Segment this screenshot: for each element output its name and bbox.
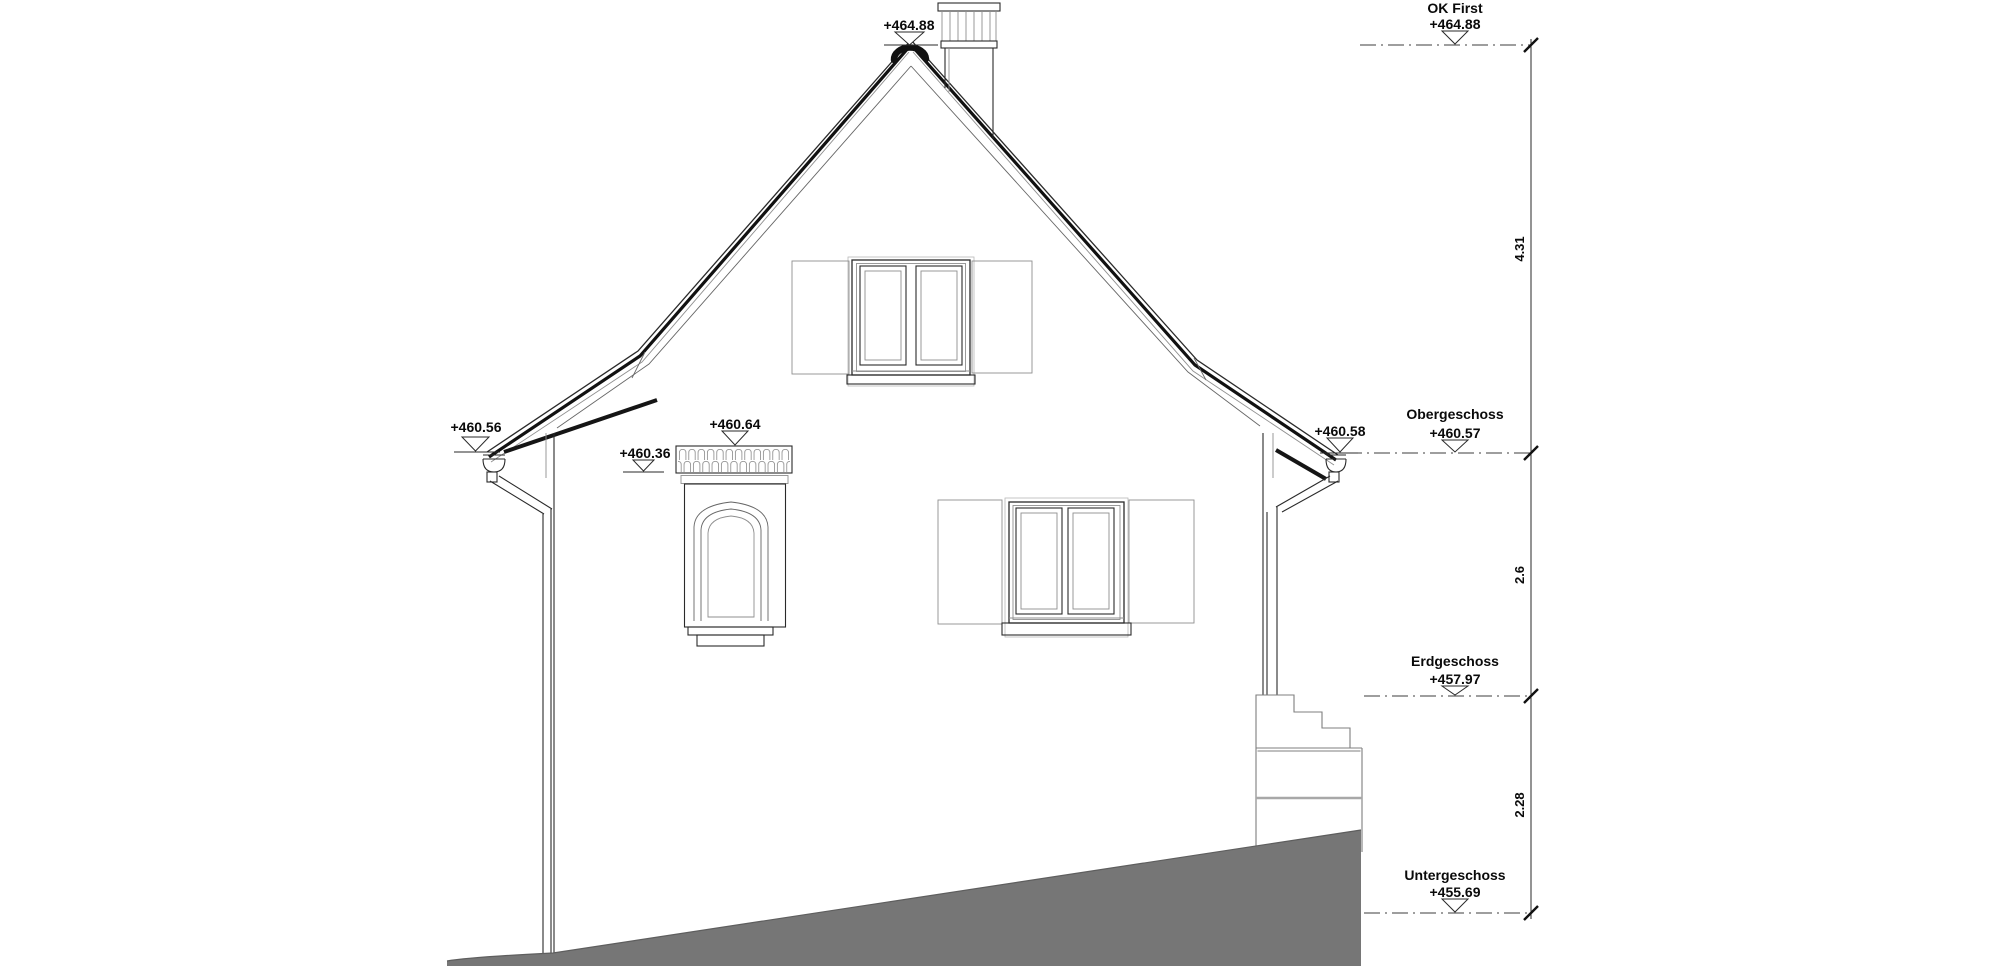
downpipe-elbow-left [487,472,497,482]
level-marker-icon [1442,440,1468,452]
casement-right-glass [1073,513,1109,609]
level-marker-icon [1442,31,1468,44]
bay-body [685,484,786,627]
bay-architrave [681,476,788,484]
bay-window [676,446,792,646]
level-label-untergeschoss: Untergeschoss +455.69 [1404,867,1505,912]
bay-arch-glass [708,516,754,617]
spot-eave-right: +460.58 [1315,423,1366,453]
exterior-stairs [1256,695,1362,852]
window-reveal [1005,498,1128,637]
spot-marker-icon [895,32,924,45]
level-elevation: +464.88 [1430,16,1481,32]
roof-edge-right [911,40,1338,455]
level-marker-icon [1442,899,1468,912]
dimension-chain: 4.31 2.6 2.28 [1512,38,1538,920]
level-name: Erdgeschoss [1411,653,1499,669]
spot-value: +460.56 [451,419,502,435]
stair-steps [1256,695,1350,748]
downpipe-left [543,509,551,953]
spot-bay-cornice-bottom: +460.36 [620,445,671,472]
lower-window [938,498,1194,637]
window-frame [1009,502,1124,623]
window-sill [1002,623,1131,635]
spot-value: +460.58 [1315,423,1366,439]
spot-bay-cornice-top: +460.64 [710,416,761,445]
roof-edge-left [487,40,911,452]
bay-cornice-ornament-row2 [678,460,790,472]
shutter-left [938,500,1002,624]
dimension-value-middle: 2.6 [1512,566,1527,584]
level-elevation: +457.97 [1430,671,1481,687]
roof-batten-right [913,52,1334,465]
dimension-value-top: 4.31 [1512,236,1527,261]
stair-block-top [1256,748,1362,751]
level-label-ok-first: OK First +464.88 [1427,0,1483,44]
shutter-right [1129,500,1194,623]
bay-sill-step2 [697,635,764,646]
casement-left-glass [865,271,901,360]
downpipe-elbow-right [1329,472,1339,482]
spot-ridge: +464.88 [884,17,939,45]
casement-right [1068,508,1114,614]
terrain [447,830,1361,966]
downpipe-diagonal-left [490,476,552,514]
level-label-obergeschoss: Obergeschoss +460.57 [1406,406,1503,452]
spot-value: +464.88 [884,17,935,33]
level-elevation: +460.57 [1430,425,1481,441]
gutter-right [1267,455,1346,695]
casement-left [860,266,906,365]
roof-band-left [489,46,910,457]
gutter-left [483,455,552,953]
shutter-left [792,261,849,374]
level-name: OK First [1427,0,1483,16]
casement-right-glass [921,271,957,360]
bay-cornice-ornament-row1 [678,448,790,460]
level-labels: OK First +464.88 Obergeschoss +460.57 Er… [1404,0,1505,912]
casement-left-glass [1021,513,1057,609]
casement-right [916,266,962,365]
window-reveal [848,257,974,386]
dimension-value-bottom: 2.28 [1512,792,1527,817]
level-label-erdgeschoss: Erdgeschoss +457.97 [1411,653,1499,695]
roof-band-right [912,46,1336,460]
spot-marker-icon [633,460,654,471]
chimney [938,3,1000,139]
window-frame-inner [1013,506,1120,620]
level-marker-icon [1442,686,1468,695]
shutter-right [972,261,1032,373]
window-frame [852,260,970,375]
spot-value: +460.64 [710,416,761,432]
chimney-cap-bars [942,11,996,41]
casement-left [1016,508,1062,614]
window-sill [847,375,975,384]
spot-marker-icon [462,437,489,451]
level-lines [1346,45,1531,913]
level-name: Untergeschoss [1404,867,1505,883]
window-frame-inner [857,264,966,372]
spot-elevation-markers: +464.88 +460.56 +460.36 +460.64 +460.58 [451,17,1366,472]
chimney-cap-plate [938,3,1000,11]
level-name: Obergeschoss [1406,406,1503,422]
elevation-sheet: 4.31 2.6 2.28 OK First +464.88 Obergesch… [0,0,2000,966]
downpipe-right [1267,507,1277,695]
level-elevation: +455.69 [1430,884,1481,900]
elevation-drawing: 4.31 2.6 2.28 OK First +464.88 Obergesch… [0,0,2000,966]
bay-sill-step1 [688,627,773,635]
chimney-collar [941,41,997,48]
upper-window [792,257,1032,386]
spot-marker-icon [722,431,748,445]
spot-value: +460.36 [620,445,671,461]
